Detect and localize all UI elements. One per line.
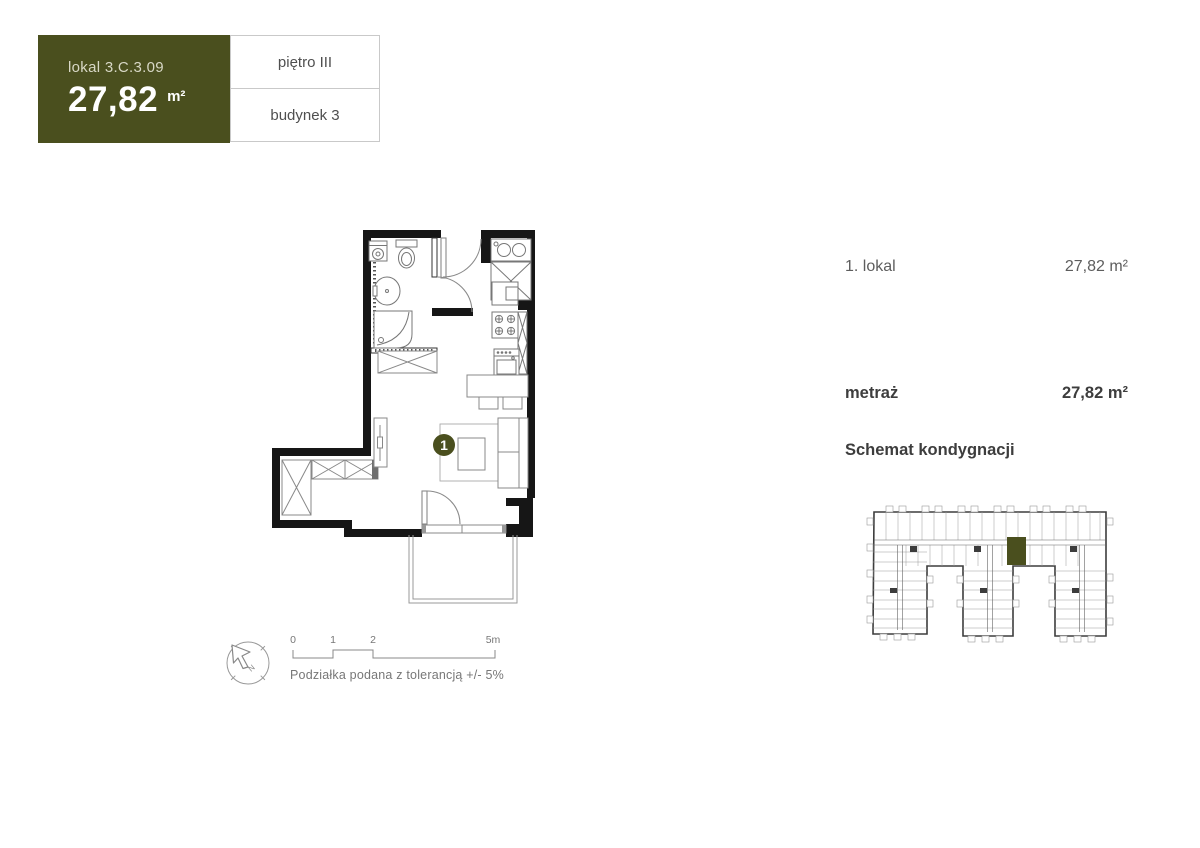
dining-table <box>467 375 528 409</box>
entrance-door <box>441 238 481 278</box>
hall-wardrobe-tall <box>282 460 311 515</box>
tv-unit <box>374 418 387 467</box>
unit-marker: 1 <box>433 434 455 456</box>
floorplan-page: lokal 3.C.3.09 27,82 m² piętro III budyn… <box>0 0 1200 848</box>
scale-tick-5m: 5m <box>486 634 501 646</box>
scale-tick-2: 2 <box>370 634 376 646</box>
highlighted-unit <box>1007 537 1026 565</box>
apartment-floorplan: 1 <box>255 215 545 615</box>
lokal-row-label: 1. lokal <box>845 258 896 276</box>
north-label: N <box>247 663 257 674</box>
metraz-label: metraż <box>845 384 898 403</box>
scale-tick-0: 0 <box>290 634 296 646</box>
wardrobe-bathroom-side <box>378 351 437 373</box>
toilet-icon <box>396 240 417 268</box>
area-unit: m² <box>167 88 185 105</box>
unit-id-label: lokal 3.C.3.09 <box>68 59 230 76</box>
building-box: budynek 3 <box>230 88 380 142</box>
schemat-title: Schemat kondygnacji <box>845 441 1015 460</box>
unit-card: lokal 3.C.3.09 27,82 m² <box>38 35 230 143</box>
shower-icon <box>374 311 412 348</box>
unit-area: 27,82 m² <box>68 82 230 117</box>
metraz-value: 27,82 m² <box>1062 384 1128 403</box>
balcony-door <box>422 491 460 524</box>
hall-wardrobe-low <box>312 460 378 479</box>
bathroom-door <box>437 277 472 312</box>
sofa <box>498 418 528 488</box>
kitchen-counter <box>492 282 518 305</box>
compass-icon: N <box>222 636 274 688</box>
washer-icon <box>369 241 387 261</box>
sink-icon <box>373 277 400 305</box>
oven-icon <box>494 349 519 377</box>
metraz-row: metraż 27,82 m² <box>845 384 1128 403</box>
building-schematic <box>866 504 1114 646</box>
balcony <box>409 535 517 603</box>
coffee-table <box>458 438 485 470</box>
bathroom <box>369 240 417 348</box>
kitchen-sink-icon <box>491 239 531 261</box>
building-outline <box>873 512 1106 636</box>
scale-tick-1: 1 <box>330 634 336 646</box>
scale-note: Podziałka podana z tolerancją +/- 5% <box>290 668 504 682</box>
scale-bar: 0 1 2 5m <box>288 632 503 666</box>
lokal-row-value: 27,82 m² <box>1065 258 1128 276</box>
unit-marker-number: 1 <box>440 437 448 453</box>
lokal-row: 1. lokal 27,82 m² <box>845 258 1128 276</box>
balcony-window <box>422 525 506 533</box>
stove-icon <box>492 312 518 338</box>
area-value: 27,82 <box>68 82 158 117</box>
floor-box: piętro III <box>230 35 380 89</box>
